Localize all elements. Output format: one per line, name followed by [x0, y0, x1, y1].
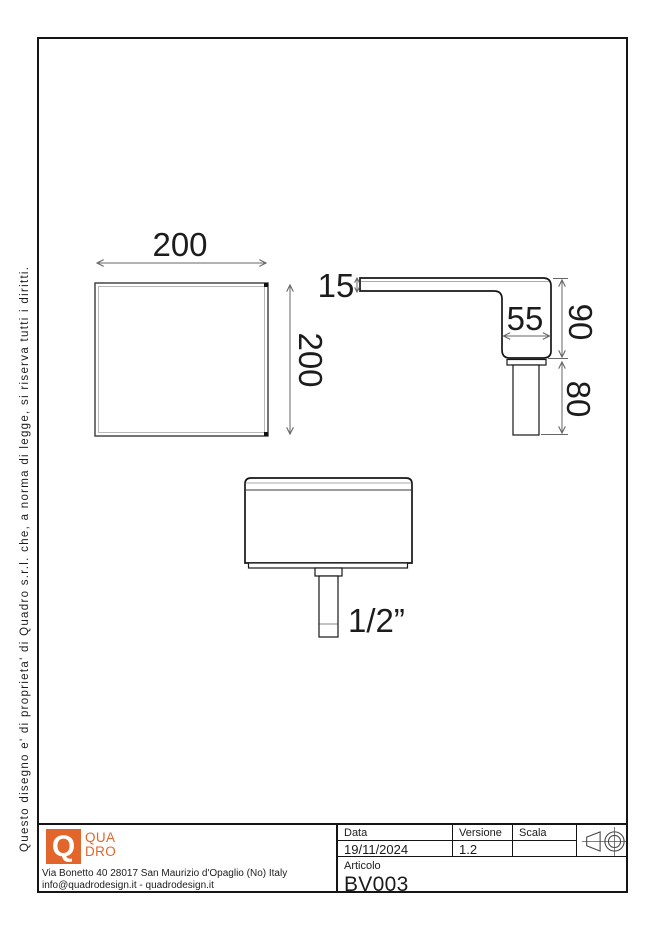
company-name-line2: DRO [85, 845, 116, 859]
drawing-sheet: Questo disegno e' di proprieta' di Quadr… [0, 0, 665, 940]
company-name: QUA DRO [85, 829, 116, 859]
side-view-pipe [513, 365, 539, 435]
title-block: Q QUA DRO Via Bonetto 40 28017 San Mauri… [37, 823, 628, 893]
dim-text-pipe-length: 80 [560, 381, 597, 418]
field-scala-value [512, 841, 576, 857]
field-articolo-cell: Articolo BV003 [338, 857, 628, 893]
front-view-pipe-nut [315, 568, 342, 576]
company-logo: Q QUA DRO [46, 829, 336, 864]
front-view: 1/2” [245, 478, 412, 639]
title-block-fields: Data Versione Scala 19/11/2024 1.2 Artic… [336, 825, 628, 893]
field-scala-label: Scala [512, 825, 576, 841]
dim-text-top-width: 200 [152, 226, 207, 263]
front-view-pipe [319, 576, 338, 637]
dim-text-top-height: 200 [292, 332, 329, 387]
top-view-corner-mark-tr [264, 283, 268, 287]
dim-text-body-height: 90 [562, 304, 599, 341]
title-block-company-cell: Q QUA DRO Via Bonetto 40 28017 San Mauri… [37, 825, 336, 893]
field-articolo-value: BV003 [344, 873, 628, 893]
side-view-flange [507, 360, 546, 366]
field-articolo-label: Articolo [344, 860, 628, 872]
company-address: Via Bonetto 40 28017 San Maurizio d'Opag… [42, 868, 336, 892]
front-view-body-outline [245, 478, 412, 563]
field-versione-label: Versione [452, 825, 512, 841]
field-data-value: 19/11/2024 [338, 841, 452, 857]
dim-text-thread: 1/2” [348, 602, 405, 639]
dim-text-body-width: 55 [507, 300, 544, 337]
company-contacts-line: info@quadrodesign.it - quadrodesign.it [42, 880, 336, 892]
field-data-label: Data [338, 825, 452, 841]
first-angle-projection-icon [579, 825, 627, 856]
side-view: 15 55 90 80 [318, 267, 599, 435]
field-versione-value: 1.2 [452, 841, 512, 857]
projection-symbol-cell [576, 825, 628, 857]
top-view-plate-outline [95, 283, 268, 436]
top-view: 200 200 [95, 226, 329, 436]
dim-text-plate-thickness: 15 [318, 267, 355, 304]
quadro-logo-icon: Q [46, 829, 81, 864]
front-view-flange [249, 563, 408, 568]
top-view-corner-mark-br [264, 432, 268, 436]
company-address-line: Via Bonetto 40 28017 San Maurizio d'Opag… [42, 868, 336, 880]
technical-drawing: 200 200 15 55 90 80 [0, 0, 665, 940]
company-name-line1: QUA [85, 831, 116, 845]
